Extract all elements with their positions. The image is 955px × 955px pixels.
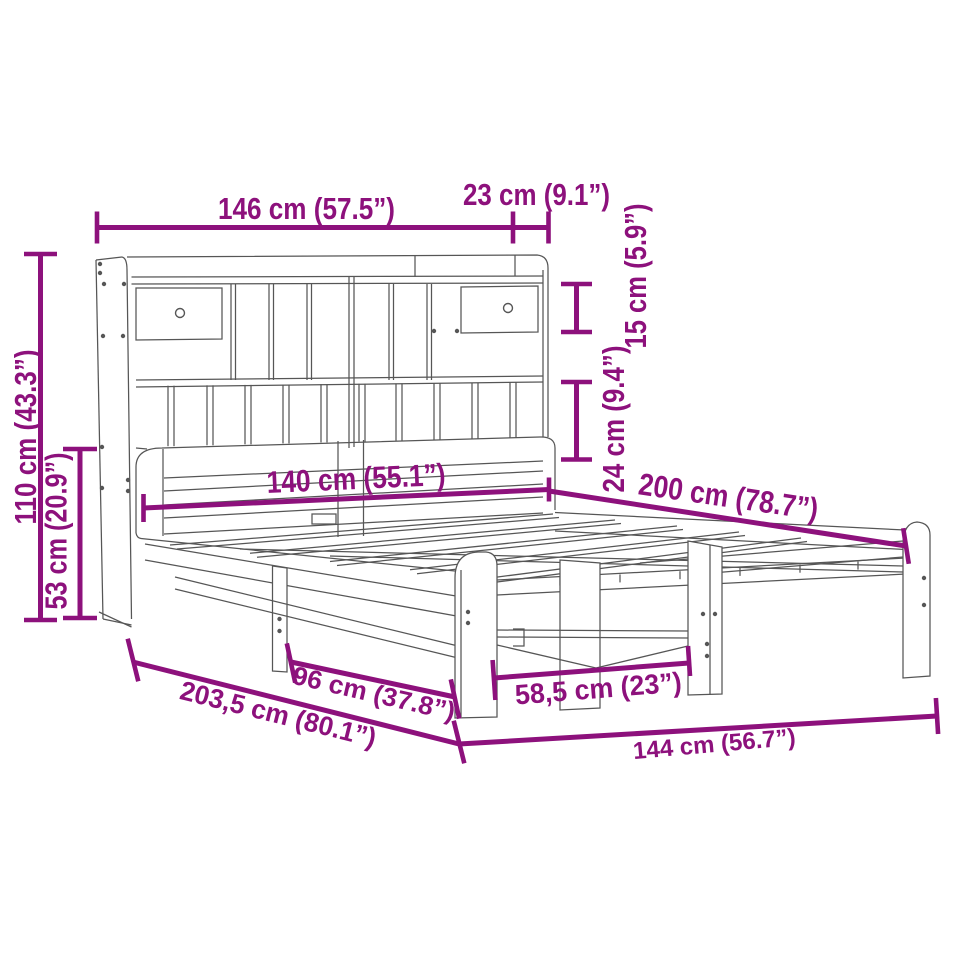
svg-text:53 cm (20.9”): 53 cm (20.9”) (39, 453, 74, 610)
svg-text:15 cm (5.9”): 15 cm (5.9”) (618, 204, 653, 349)
svg-text:24 cm (9.4”): 24 cm (9.4”) (596, 346, 631, 493)
svg-text:146 cm (57.5”): 146 cm (57.5”) (218, 191, 395, 226)
svg-text:23 cm (9.1”): 23 cm (9.1”) (463, 177, 610, 212)
